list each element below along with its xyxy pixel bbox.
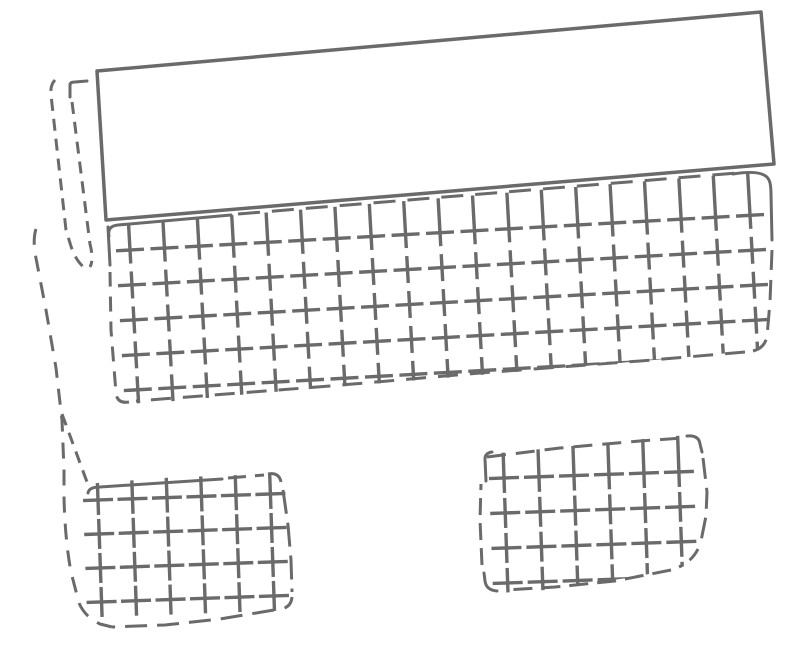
hatch-mark-vertical <box>275 369 277 396</box>
hatch-mark-vertical <box>376 328 378 355</box>
hatch-mark-vertical <box>478 287 480 314</box>
hatch-mark-vertical <box>137 376 139 403</box>
hatch-mark-vertical <box>581 281 583 308</box>
hatch-mark-vertical <box>411 326 413 353</box>
hatch-mark-vertical <box>541 532 542 562</box>
hatch-mark-vertical <box>617 314 619 341</box>
hatch-mark-vertical <box>548 318 550 345</box>
hatch-mark-vertical <box>238 336 240 363</box>
hatch-mark-vertical <box>751 237 753 264</box>
hatch-mark-vertical <box>576 531 577 561</box>
hatch-mark-vertical <box>646 528 647 558</box>
hatch-mark-vertical <box>510 250 512 277</box>
hatch-mark-vertical <box>721 309 723 336</box>
hatch-mark-vertical <box>540 497 541 527</box>
hatch-mark-vertical <box>271 299 273 326</box>
hatch-mark-vertical <box>441 254 443 281</box>
hatch-mark-vertical <box>407 256 409 283</box>
mat-left-edge-solid <box>108 227 110 265</box>
hatch-mark-vertical <box>443 289 445 316</box>
hatch-mark-vertical <box>135 341 137 368</box>
hatch-mark-vertical <box>684 276 686 303</box>
hatch-mark-vertical <box>545 248 547 275</box>
hatch-mark-vertical <box>719 274 721 301</box>
hatch-mark-vertical <box>273 334 275 361</box>
hatch-mark-vertical <box>338 260 340 287</box>
hatch-mark-vertical <box>480 322 482 349</box>
hatch-mark-vertical <box>99 519 100 549</box>
hatch-mark-vertical <box>202 515 203 545</box>
hatch-mark-vertical <box>168 304 170 331</box>
hatch-mark-vertical <box>648 243 650 270</box>
hatch-mark-vertical <box>200 268 202 295</box>
hatch-mark-vertical <box>237 514 238 544</box>
hatch-mark-vertical <box>681 527 682 557</box>
hatch-mark-vertical <box>717 239 719 266</box>
hatch-mark-vertical <box>131 271 133 298</box>
hatch-mark-vertical <box>166 270 168 297</box>
hatch-mark-vertical <box>610 494 611 524</box>
hatch-mark-vertical <box>238 548 239 578</box>
hatch-mark-vertical <box>652 312 654 339</box>
hatch-mark-vertical <box>547 283 549 310</box>
hatch-mark-vertical <box>512 285 514 312</box>
hatch-mark-vertical <box>575 496 576 526</box>
hatch-mark-vertical <box>235 475 236 510</box>
hatch-mark-vertical <box>273 581 274 611</box>
hatch-mark-vertical <box>307 332 309 359</box>
hatch-mark-vertical <box>101 587 102 617</box>
hatch-mark-vertical <box>272 547 273 577</box>
hatch-mark-vertical <box>476 252 478 279</box>
hatch-mark-vertical <box>374 293 376 320</box>
hatch-mark-vertical <box>340 295 342 322</box>
hatch-mark-vertical <box>645 493 646 523</box>
hatch-mark-vertical <box>445 324 447 351</box>
hatch-mark-vertical <box>579 246 581 273</box>
hatch-mark-vertical <box>134 552 135 582</box>
hatch-mark-vertical <box>239 582 240 612</box>
hatch-mark-vertical <box>686 311 688 338</box>
technical-sketch-svg <box>0 0 800 646</box>
hatch-mark-vertical <box>236 301 238 328</box>
hatch-mark-vertical <box>269 264 271 291</box>
hatch-mark-vertical <box>755 307 757 334</box>
hatch-mark-vertical <box>169 551 170 581</box>
hatch-mark-vertical <box>202 303 204 330</box>
hatch-mark-vertical <box>650 278 652 305</box>
hatch-mark-vertical <box>678 434 680 487</box>
hatch-mark-vertical <box>342 330 344 357</box>
hatch-mark-vertical <box>170 585 171 615</box>
hatch-mark-vertical <box>204 583 205 613</box>
hatch-mark-vertical <box>136 586 137 616</box>
hatch-mark-vertical <box>204 338 206 365</box>
hatch-mark-vertical <box>203 549 204 579</box>
hatch-mark-vertical <box>615 279 617 306</box>
hatch-mark-vertical <box>409 291 411 318</box>
hatch-mark-vertical <box>100 553 101 583</box>
hatch-mark-vertical <box>206 372 208 399</box>
hatch-mark-vertical <box>682 241 684 268</box>
hatch-mark-vertical <box>97 480 98 515</box>
hatch-mark-vertical <box>271 513 272 543</box>
hatch-mark-vertical <box>240 371 242 398</box>
hatch-mark-vertical <box>505 498 506 528</box>
hatch-mark-vertical <box>133 518 134 548</box>
hatch-mark-vertical <box>170 339 172 366</box>
hatch-mark-vertical <box>372 258 374 285</box>
hatch-mark-vertical <box>305 297 307 324</box>
hatch-mark-vertical <box>680 492 681 522</box>
hatch-mark-vertical <box>168 517 169 547</box>
hatch-mark-vertical <box>753 272 755 299</box>
hatch-mark-vertical <box>643 435 645 488</box>
hatch-mark-vertical <box>506 533 507 563</box>
hatch-mark-vertical <box>270 474 271 509</box>
sketch-canvas <box>0 0 800 646</box>
hatch-mark-vertical <box>613 245 615 272</box>
hatch-mark-vertical <box>514 320 516 347</box>
hatch-mark-vertical <box>133 306 135 333</box>
hatch-mark-vertical <box>172 374 174 401</box>
hatch-mark-vertical <box>235 266 237 293</box>
hatch-mark-vertical <box>611 529 612 559</box>
hatch-mark-vertical <box>303 262 305 289</box>
hatch-mark-vertical <box>583 316 585 343</box>
